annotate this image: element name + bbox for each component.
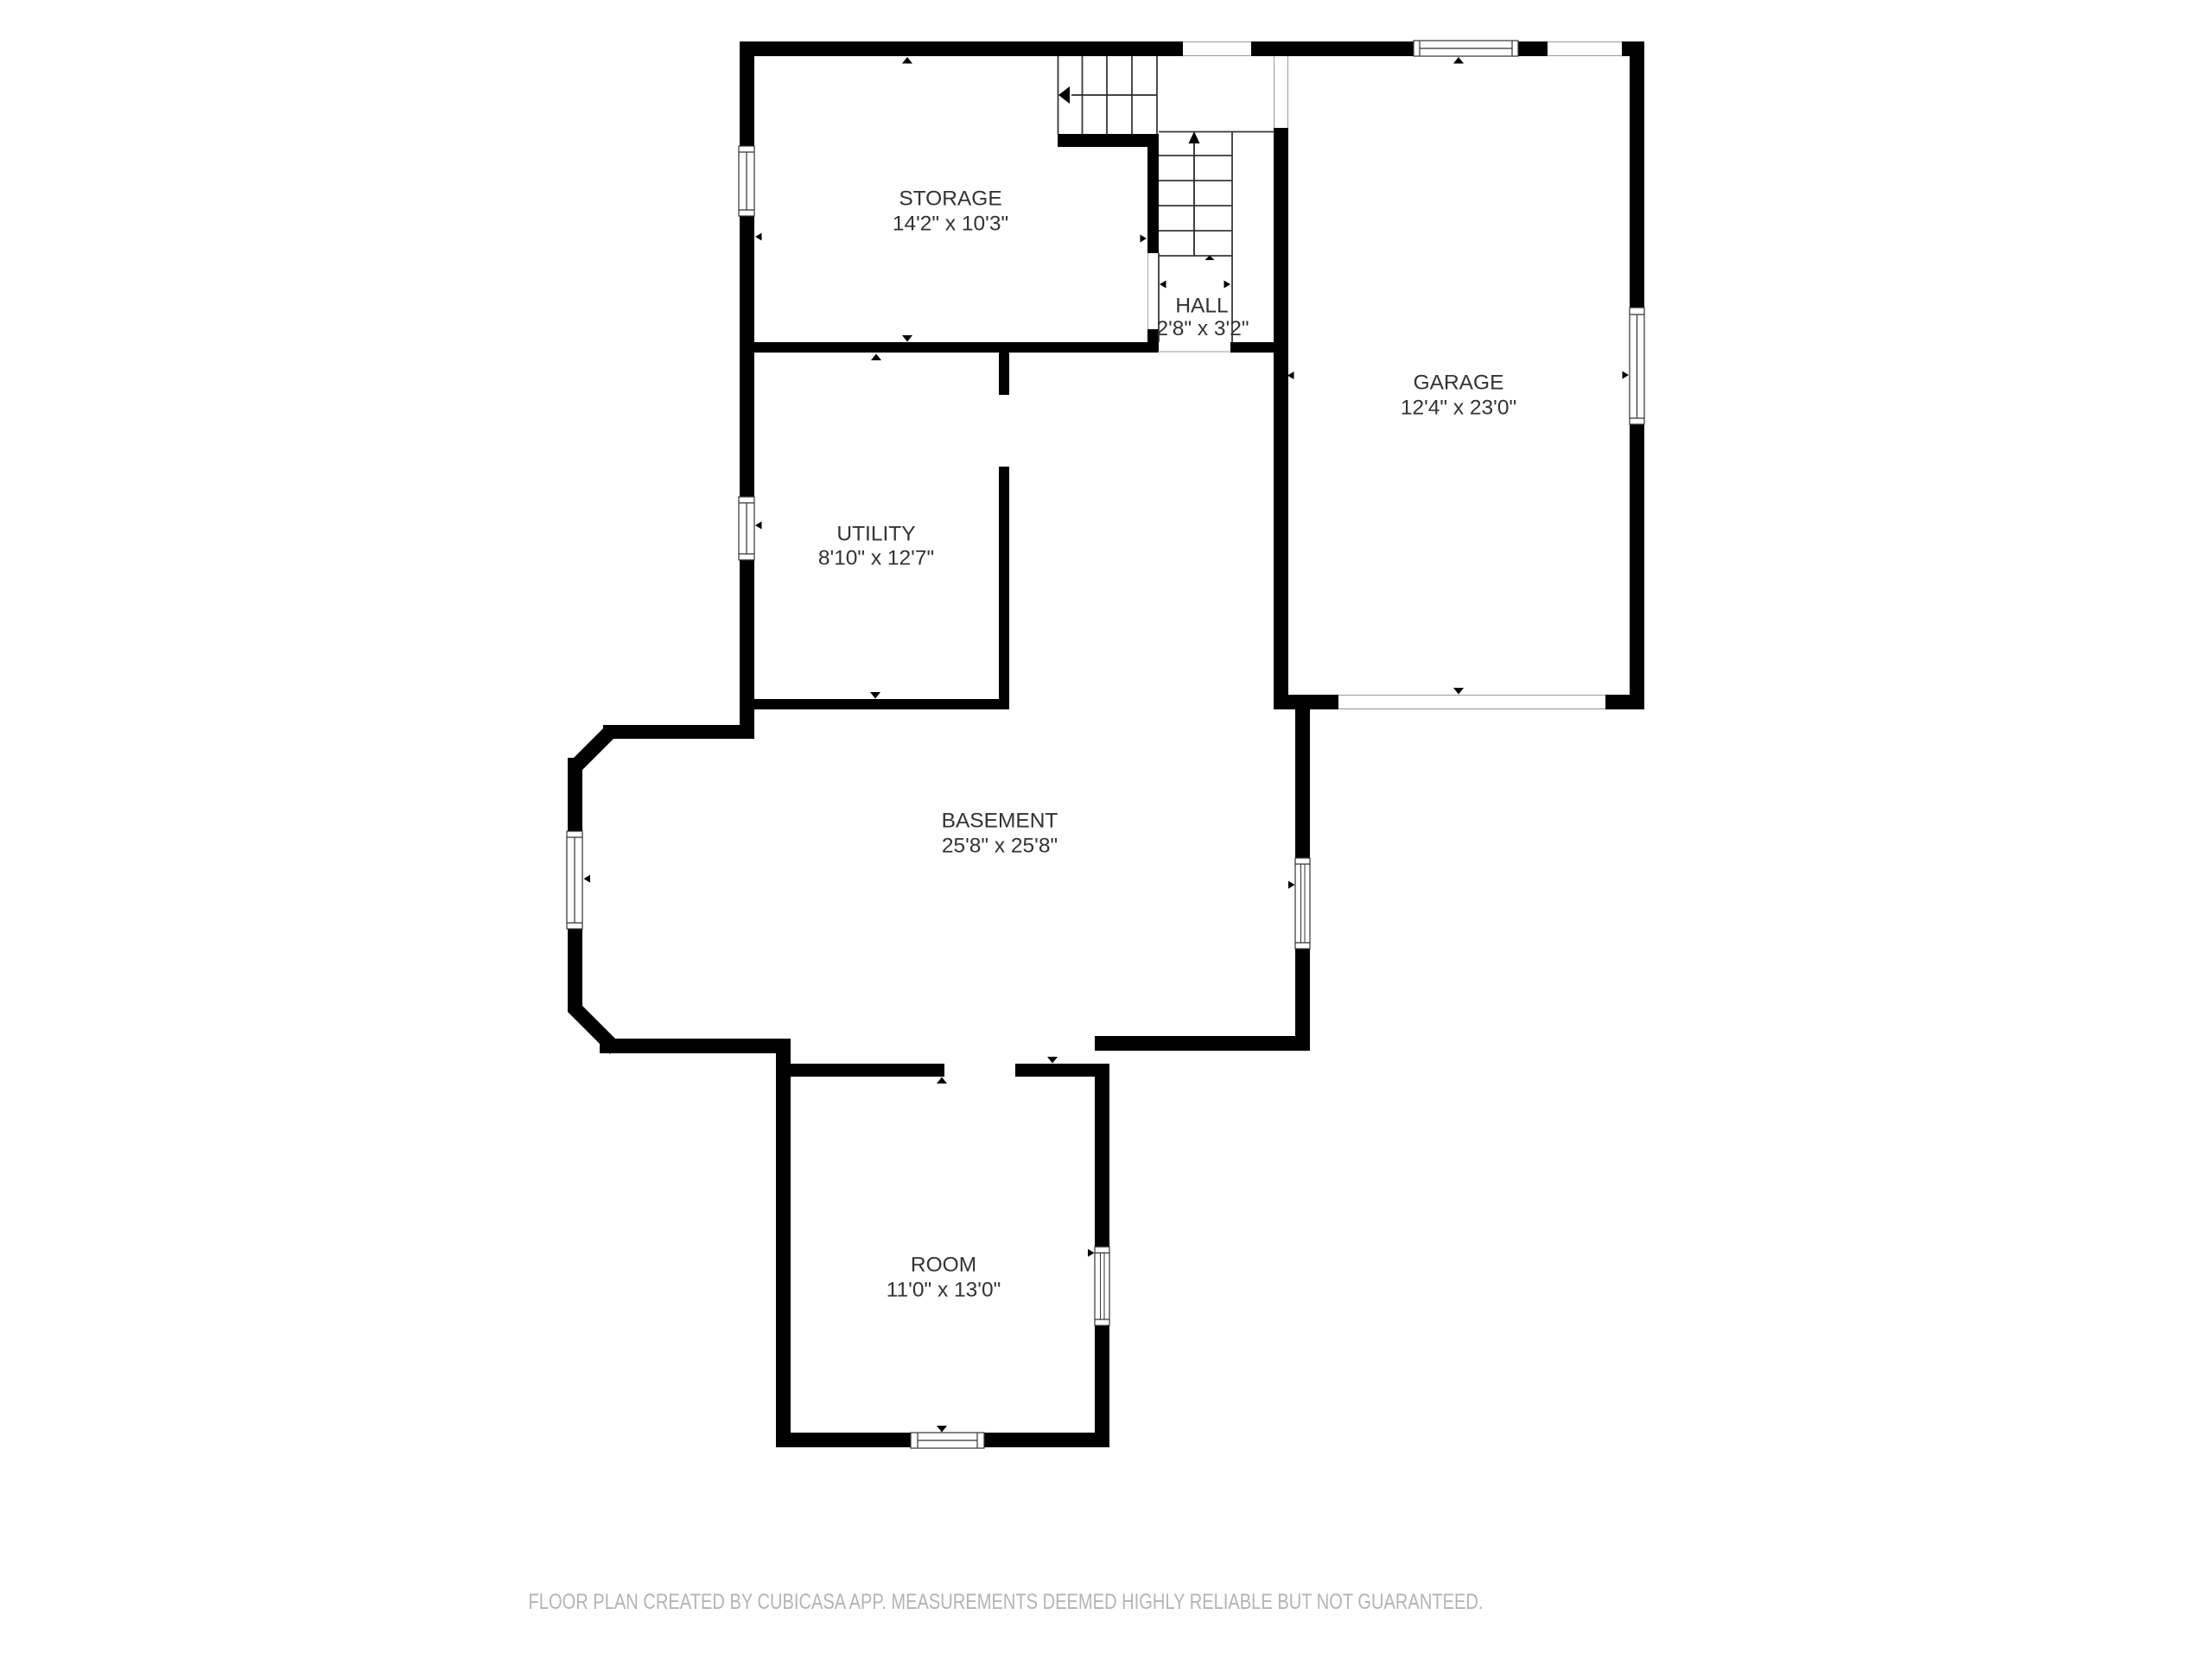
svg-text:BASEMENT: BASEMENT: [942, 810, 1058, 833]
svg-text:8'10" x 12'7": 8'10" x 12'7": [818, 547, 934, 570]
svg-text:25'8" x 25'8": 25'8" x 25'8": [942, 835, 1058, 858]
svg-text:STORAGE: STORAGE: [899, 188, 1001, 211]
svg-text:HALL: HALL: [1175, 295, 1228, 318]
svg-text:14'2" x 10'3": 14'2" x 10'3": [893, 213, 1008, 236]
svg-text:UTILITY: UTILITY: [836, 523, 915, 546]
svg-text:12'4" x 23'0": 12'4" x 23'0": [1401, 397, 1516, 420]
svg-text:ROOM: ROOM: [911, 1254, 976, 1277]
svg-text:2'8" x 3'2": 2'8" x 3'2": [1156, 317, 1249, 340]
svg-text:GARAGE: GARAGE: [1414, 372, 1504, 395]
svg-text:FLOOR PLAN CREATED BY CUBICASA: FLOOR PLAN CREATED BY CUBICASA APP. MEAS…: [529, 1590, 1484, 1614]
svg-text:11'0" x 13'0": 11'0" x 13'0": [887, 1279, 1001, 1302]
